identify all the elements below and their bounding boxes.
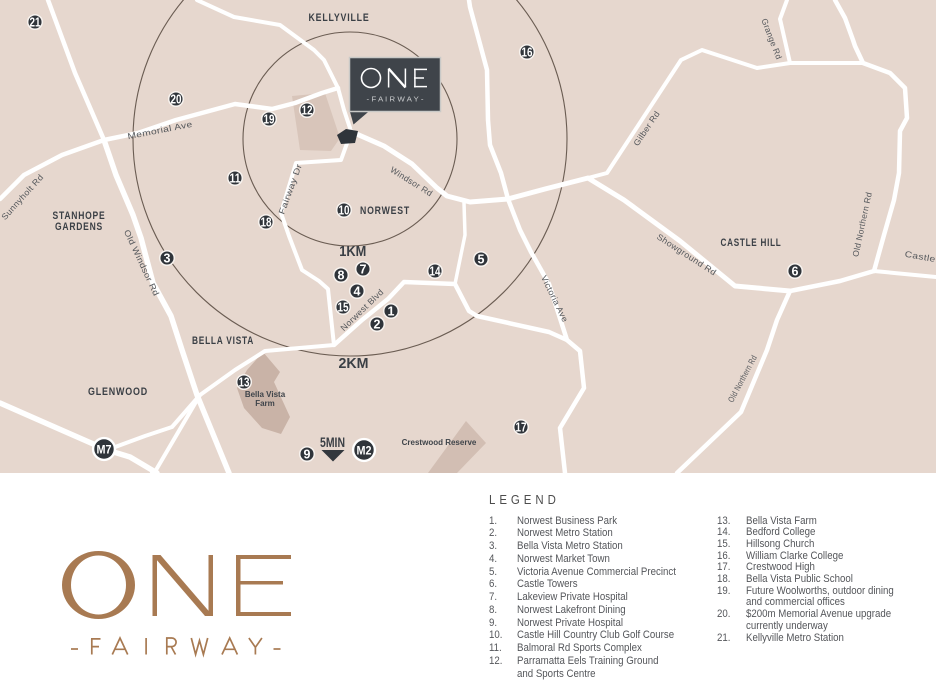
svg-text:2KM: 2KM: [339, 355, 369, 372]
svg-text:9: 9: [304, 447, 311, 461]
svg-text:21: 21: [30, 15, 41, 29]
svg-text:M7: M7: [97, 442, 112, 456]
svg-text:8: 8: [338, 268, 345, 282]
svg-text:CASTLE HILL: CASTLE HILL: [721, 237, 782, 249]
svg-text:M2: M2: [357, 443, 372, 457]
svg-text:12: 12: [302, 103, 313, 117]
svg-text:7: 7: [360, 262, 367, 276]
svg-text:13: 13: [239, 375, 250, 389]
svg-text:14: 14: [430, 264, 441, 278]
svg-text:- F A I R W A Y -: - F A I R W A Y -: [367, 95, 425, 104]
svg-text:16: 16: [522, 45, 533, 59]
svg-text:Farm: Farm: [255, 399, 275, 408]
svg-text:Bella Vista: Bella Vista: [245, 390, 286, 399]
svg-text:1KM: 1KM: [339, 243, 366, 260]
svg-text:5MIN: 5MIN: [320, 434, 345, 450]
svg-text:1: 1: [388, 304, 395, 318]
svg-text:10: 10: [339, 203, 350, 217]
svg-text:6: 6: [792, 264, 799, 278]
svg-text:17: 17: [516, 420, 527, 434]
svg-text:GARDENS: GARDENS: [55, 221, 103, 233]
svg-text:18: 18: [261, 215, 272, 229]
svg-text:BELLA VISTA: BELLA VISTA: [192, 335, 254, 347]
svg-text:4: 4: [354, 284, 361, 298]
svg-text:GLENWOOD: GLENWOOD: [88, 386, 148, 398]
svg-text:NORWEST: NORWEST: [360, 205, 410, 217]
svg-text:2: 2: [374, 317, 381, 331]
svg-text:Crestwood Reserve: Crestwood Reserve: [402, 438, 477, 447]
svg-text:5: 5: [478, 252, 485, 266]
svg-text:11: 11: [230, 171, 241, 185]
svg-text:3: 3: [164, 251, 171, 265]
svg-text:20: 20: [171, 92, 182, 106]
svg-text:KELLYVILLE: KELLYVILLE: [309, 12, 370, 24]
svg-text:15: 15: [338, 300, 349, 314]
svg-text:19: 19: [264, 112, 275, 126]
